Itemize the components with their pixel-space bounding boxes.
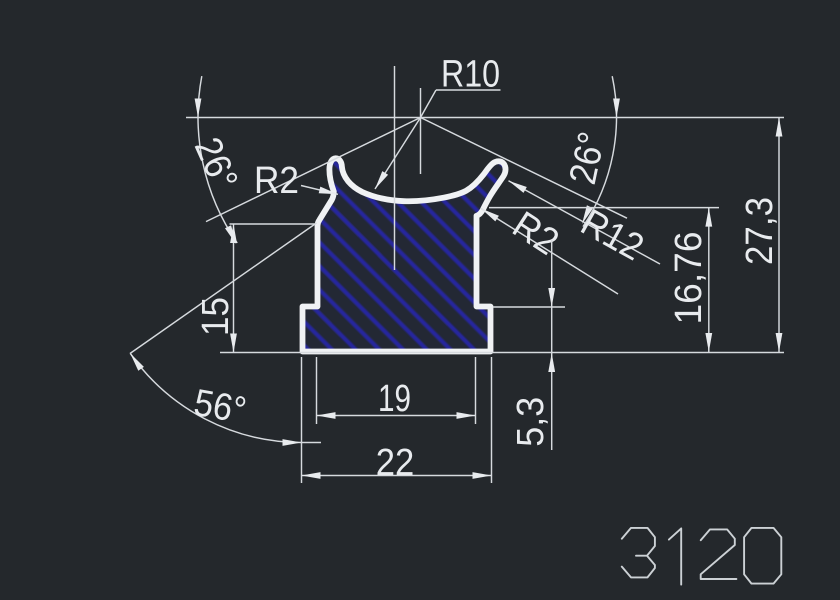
svg-text:19: 19 <box>378 378 411 420</box>
svg-text:16,76: 16,76 <box>668 232 710 325</box>
svg-text:R2: R2 <box>254 160 299 202</box>
svg-text:5,3: 5,3 <box>510 397 552 447</box>
svg-text:56°: 56° <box>191 382 250 432</box>
svg-text:27,3: 27,3 <box>739 197 781 265</box>
svg-text:R10: R10 <box>441 54 500 96</box>
svg-text:22: 22 <box>376 442 415 484</box>
svg-text:15: 15 <box>195 297 237 336</box>
